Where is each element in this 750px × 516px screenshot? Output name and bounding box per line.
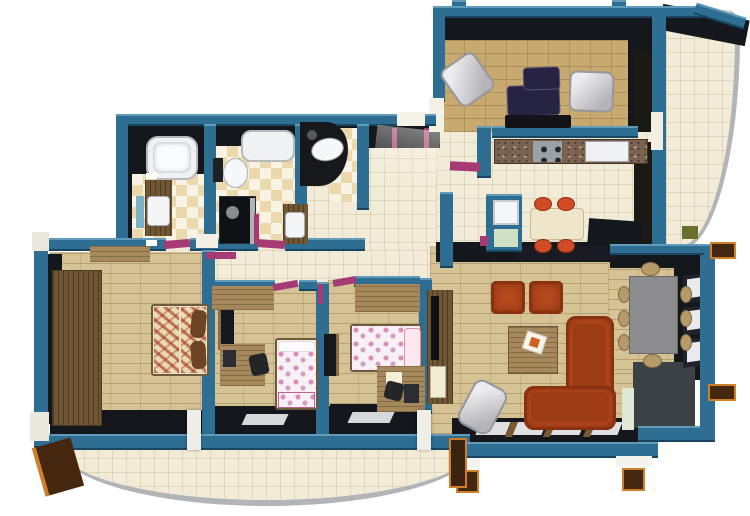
master-pillow-2 xyxy=(190,341,207,370)
bedroom3-wardrobe xyxy=(355,284,420,312)
balcony-plant xyxy=(682,226,698,239)
kitchen-stove xyxy=(533,141,562,162)
bathmat-1 xyxy=(136,196,144,228)
nook-chair-4 xyxy=(557,239,575,253)
sink-1 xyxy=(147,196,170,226)
fridge-knob xyxy=(480,236,488,246)
pillar-south-2 xyxy=(417,410,431,450)
wall-dining-east xyxy=(700,244,715,442)
bedroom2-bed-floral xyxy=(277,350,316,394)
bedroom2-wardrobe xyxy=(212,286,274,310)
nook-chair-1 xyxy=(534,197,552,211)
sill-se xyxy=(616,456,652,467)
master-dresser xyxy=(90,246,150,262)
ottoman-2 xyxy=(529,281,563,314)
ottoman-1 xyxy=(491,281,525,314)
utility-block xyxy=(633,362,695,428)
family-tv-console xyxy=(505,115,571,128)
wall-bath1-bath2 xyxy=(204,124,216,248)
kitchen-mat xyxy=(494,229,518,247)
dining-chair-s xyxy=(643,354,662,368)
wall-bathrooms-west xyxy=(116,114,128,252)
bedroom2-window xyxy=(241,414,288,425)
wall-dining-north xyxy=(610,244,704,255)
dining-shadow-north xyxy=(610,254,712,268)
pillar-west-2 xyxy=(30,412,49,441)
pillar-south-1 xyxy=(187,410,201,450)
bedroom3-tv-unit xyxy=(324,334,339,376)
dining-table xyxy=(629,276,678,354)
bathtub-1-basin xyxy=(153,142,191,173)
door-master-leaf xyxy=(196,234,218,248)
corner-post-ne xyxy=(710,242,736,259)
corner-post-se xyxy=(622,468,645,491)
nook-table xyxy=(530,208,584,240)
family-navy-back xyxy=(523,66,561,90)
entrance-door xyxy=(397,112,425,126)
utility-block-edge xyxy=(622,388,634,430)
bathtub-2 xyxy=(241,130,295,162)
balcony-door-post xyxy=(449,438,467,488)
balcony-east-floor xyxy=(666,10,740,250)
toilet-2-tank xyxy=(213,158,223,182)
doorframe-bedroom23 xyxy=(318,284,323,304)
wall-family-west xyxy=(433,6,445,102)
dining-chair-e3 xyxy=(680,334,692,351)
living-tv xyxy=(431,296,439,360)
wall-south-bedrooms xyxy=(46,434,470,450)
kitchen-sink xyxy=(585,141,629,162)
dining-chair-e1 xyxy=(680,286,692,303)
dining-chair-w2 xyxy=(618,310,630,327)
corner-post-e xyxy=(708,384,736,401)
door-kitchen-nook xyxy=(450,161,480,172)
bedroom3-window xyxy=(347,412,394,423)
wall-bath3-east xyxy=(357,124,369,210)
wall-dining-south xyxy=(638,426,708,442)
master-bed-quilt-1 xyxy=(154,307,179,373)
pillar-west-1 xyxy=(32,232,49,251)
sofa-base-cushion xyxy=(531,392,609,422)
bedroom2-blanket xyxy=(278,392,315,408)
dining-chair-w3 xyxy=(618,334,630,351)
dining-chair-w1 xyxy=(618,286,630,303)
fridge xyxy=(493,200,519,225)
dining-chair-e2 xyxy=(680,310,692,327)
bedroom3-pillow xyxy=(404,328,421,368)
bedroom3-bed-floral xyxy=(352,326,406,370)
master-pillow-1 xyxy=(190,309,208,338)
sink-2 xyxy=(285,212,305,238)
tap-3 xyxy=(307,130,317,140)
floor-plan xyxy=(0,0,750,516)
wall-bedroom2-north-b xyxy=(299,280,317,291)
nook-chair-3 xyxy=(534,239,552,253)
shower-2-head xyxy=(226,206,239,219)
wall-north-bathrooms xyxy=(116,114,398,126)
nook-chair-2 xyxy=(557,197,575,211)
wall-north-entry-stub xyxy=(424,114,436,126)
balcony-east-door xyxy=(651,112,663,150)
door-master xyxy=(206,252,236,259)
towel-1a xyxy=(146,173,157,179)
master-wardrobe xyxy=(52,270,102,426)
toilet-2 xyxy=(223,158,248,188)
bedroom3-pc xyxy=(404,384,419,403)
bedroom2-pillow xyxy=(278,341,315,352)
family-armchair-2 xyxy=(568,70,614,113)
wall-nook-west xyxy=(440,192,453,268)
bedroom2-pc xyxy=(223,350,236,367)
dining-chair-n xyxy=(641,262,660,276)
entrance-light-beam xyxy=(371,125,441,195)
living-deco xyxy=(430,366,446,398)
balcony-south-floor xyxy=(56,444,478,506)
